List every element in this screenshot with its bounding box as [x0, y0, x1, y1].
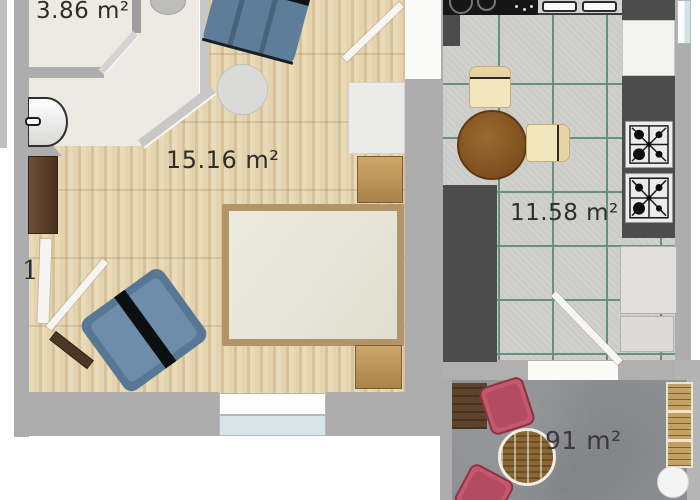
bottom-wall-left — [14, 392, 219, 436]
double-bed — [222, 204, 404, 346]
bedroom-entry-opening — [405, 0, 441, 79]
bottom-wall-right — [326, 392, 443, 436]
fridge-unit-2 — [620, 316, 674, 352]
door-number-label: 1 — [22, 256, 39, 286]
bathroom-partition-wall — [14, 67, 104, 78]
burner-ring — [477, 0, 496, 11]
balcony-area-label: 91 m² — [545, 426, 622, 455]
kitchen-right-window — [677, 0, 691, 44]
fridge-unit-1 — [620, 246, 677, 314]
side-table-round — [217, 64, 268, 115]
sink-faucet — [25, 117, 41, 126]
balcony-bench — [666, 382, 693, 468]
wardrobe-white — [348, 82, 405, 154]
kitchen-counter-left — [443, 185, 497, 362]
kitchen-chair-1 — [469, 66, 511, 108]
double-sink — [538, 0, 623, 15]
balcony-stool — [657, 466, 689, 498]
bedroom-window-glass — [219, 415, 326, 436]
left-wall — [14, 0, 29, 437]
cabinet-brown — [28, 156, 58, 234]
kitchen-chair-2 — [526, 124, 570, 162]
mattress — [229, 211, 397, 339]
balcony-door-opening — [528, 361, 618, 380]
gas-hob-2 — [624, 172, 674, 224]
gas-hob-1 — [624, 120, 674, 169]
burner-ring — [449, 0, 473, 14]
bathroom-right-wall — [199, 0, 209, 93]
bathroom-door-jamb — [132, 0, 141, 33]
bedroom-window-pane — [219, 393, 326, 415]
cooktop-black — [443, 0, 539, 15]
kitchen-area-label: 11.58 m² — [510, 200, 619, 226]
nightstand-top — [357, 156, 403, 203]
floor-plan: 3.86 m² 15.16 m² 11.58 m² 91 m² 1 — [0, 0, 700, 500]
bedroom-area-label: 15.16 m² — [166, 146, 279, 174]
dining-table-round — [457, 110, 527, 180]
kitchen-right-wall — [675, 0, 691, 360]
bathroom-area-label: 3.86 m² — [36, 0, 130, 24]
outer-wall-sliver — [0, 0, 7, 148]
balcony-left-wall — [440, 378, 452, 500]
balcony-corner-wall — [675, 360, 700, 380]
appliance-white — [622, 20, 675, 76]
nightstand-bottom — [355, 345, 402, 389]
